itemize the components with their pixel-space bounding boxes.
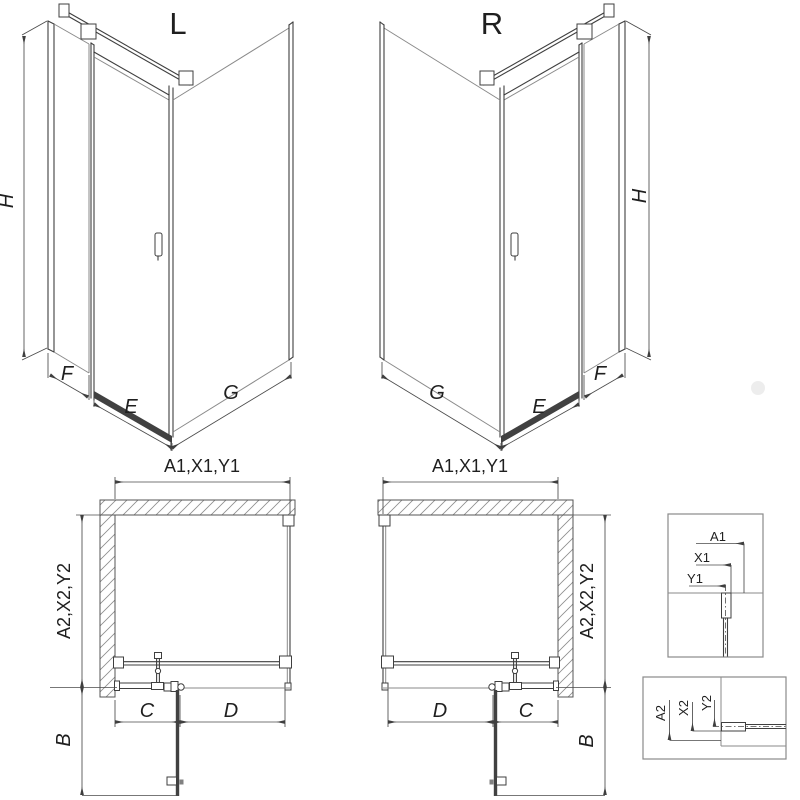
dim-height-right: H [629,188,651,203]
detail-x2-label: X2 [676,700,691,716]
dim-b-left: B [53,733,75,746]
label-variant-left: L [169,6,186,41]
detail-x1-label: X1 [694,550,710,565]
dim-a2-left: A2,X2,Y2 [54,563,74,639]
wall-side [558,515,573,697]
dim-e-right: E [532,396,546,418]
dim-b-right: B [576,734,598,747]
dim-d-left: D [224,700,238,722]
technical-drawing-page: L R H H F E G G E F [0,0,800,800]
iso-view-right-geometry [380,4,651,451]
dim-c-right: C [519,700,534,722]
dim-d-right: D [433,700,447,722]
dim-g-right: G [429,382,445,404]
detail-a1-label: A1 [710,529,726,544]
plan-view-left [50,477,295,796]
detail-y2-label: Y2 [699,695,714,711]
dim-e-left: E [124,396,138,418]
dim-a2-right: A2,X2,Y2 [577,563,597,639]
label-variant-right: R [481,6,503,41]
wall-back [378,500,573,515]
detail-a2-label: A2 [653,705,668,721]
detail-y1-label: Y1 [687,571,703,586]
shower-enclosure-diagram: L R H H F E G G E F [0,0,800,800]
dim-c-left: C [140,700,155,722]
watermark-dot [751,381,765,395]
wall-back [100,500,295,515]
dim-a1-left: A1,X1,Y1 [164,456,240,476]
dim-a1-right: A1,X1,Y1 [432,456,508,476]
wall-side [100,515,115,697]
dim-g-left: G [223,382,239,404]
dim-f-left: F [61,363,75,385]
dim-height-left: H [0,193,18,208]
dim-f-right: F [594,363,608,385]
